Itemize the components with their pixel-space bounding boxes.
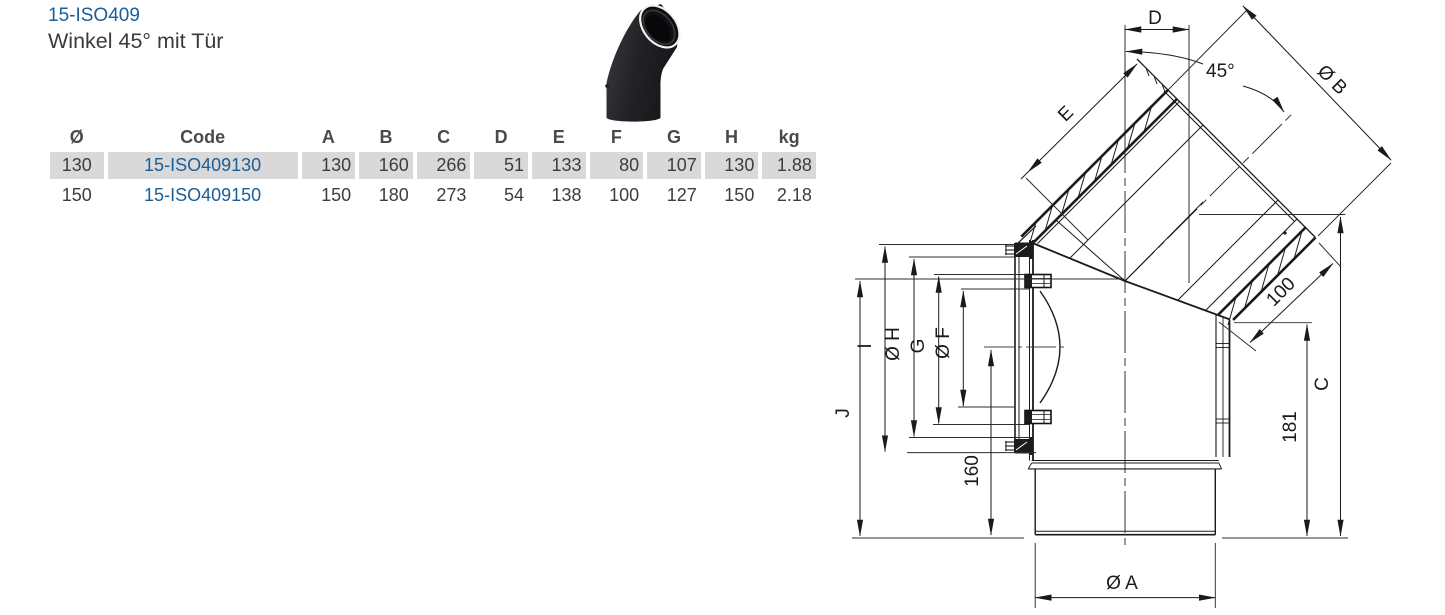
svg-text:C: C bbox=[1312, 377, 1333, 391]
svg-text:181: 181 bbox=[1280, 411, 1301, 443]
svg-text:I: I bbox=[855, 343, 876, 348]
svg-text:E: E bbox=[1054, 102, 1078, 126]
svg-text:160: 160 bbox=[962, 455, 983, 487]
svg-text:Ø F: Ø F bbox=[933, 327, 954, 359]
svg-text:45°: 45° bbox=[1206, 61, 1235, 82]
svg-text:Ø A: Ø A bbox=[1106, 573, 1138, 594]
svg-text:100: 100 bbox=[1262, 273, 1299, 310]
svg-text:Ø B: Ø B bbox=[1313, 61, 1351, 99]
svg-text:D: D bbox=[1148, 8, 1162, 29]
svg-text:Ø H: Ø H bbox=[883, 327, 904, 361]
svg-text:G: G bbox=[908, 339, 929, 354]
svg-text:J: J bbox=[833, 408, 854, 418]
